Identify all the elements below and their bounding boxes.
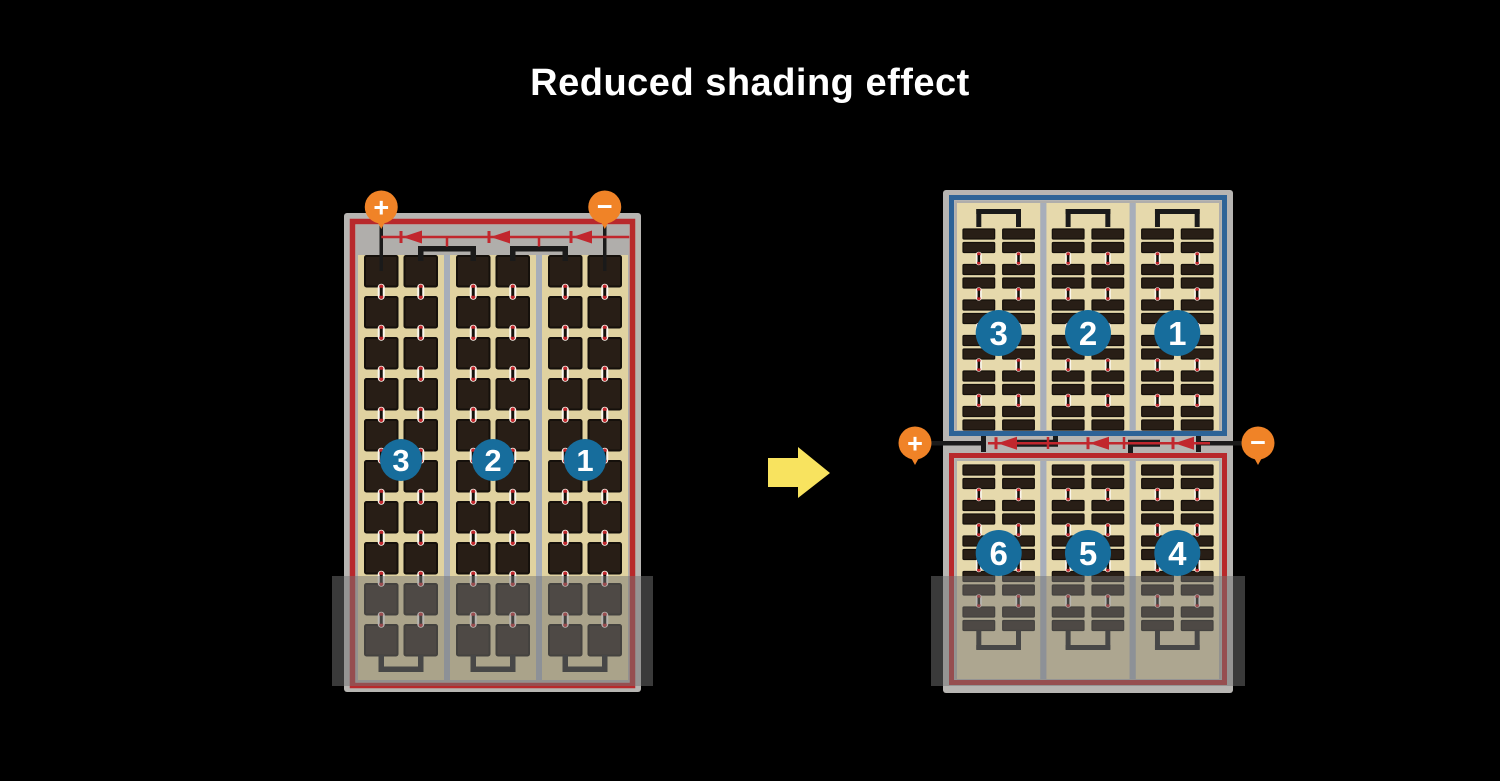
left-string-badge-3: 3	[380, 439, 422, 481]
string-number: 1	[576, 443, 593, 478]
right-positive-terminal: +	[899, 427, 932, 466]
diagram-canvas: Reduced shading effect + − 3 2 1	[0, 0, 1500, 781]
right-negative-terminal: −	[1242, 427, 1275, 466]
string-number: 2	[484, 443, 501, 478]
left-string-badge-2: 2	[472, 439, 514, 481]
right-top-string-badge-2: 2	[1065, 310, 1111, 356]
right-top-string-badge-1: 1	[1154, 310, 1200, 356]
string-number: 3	[392, 443, 409, 478]
left-module-full-cell: + − 3 2 1	[330, 185, 665, 700]
right-bottom-string-badge-6: 6	[976, 530, 1022, 576]
right-shade-overlay	[931, 576, 1245, 686]
string-number: 6	[990, 535, 1008, 572]
right-bottom-string-badge-4: 4	[1154, 530, 1200, 576]
right-top-string-badge-3: 3	[976, 310, 1022, 356]
plus-sign: +	[907, 429, 923, 459]
left-shade-overlay	[332, 576, 653, 686]
right-bottom-string-badge-5: 5	[1065, 530, 1111, 576]
right-module-half-cut: + − 3 2 1 6 5 4	[895, 185, 1280, 700]
minus-sign: −	[1250, 428, 1266, 458]
left-string-badge-1: 1	[564, 439, 606, 481]
string-number: 1	[1168, 315, 1186, 352]
flow-arrow	[764, 444, 834, 502]
plus-sign: +	[373, 193, 389, 223]
string-number: 2	[1079, 315, 1097, 352]
string-number: 3	[990, 315, 1008, 352]
minus-sign: −	[597, 192, 613, 222]
string-number: 4	[1168, 535, 1187, 572]
diagram-title: Reduced shading effect	[0, 62, 1500, 105]
string-number: 5	[1079, 535, 1097, 572]
right-arrow-icon	[768, 447, 830, 498]
